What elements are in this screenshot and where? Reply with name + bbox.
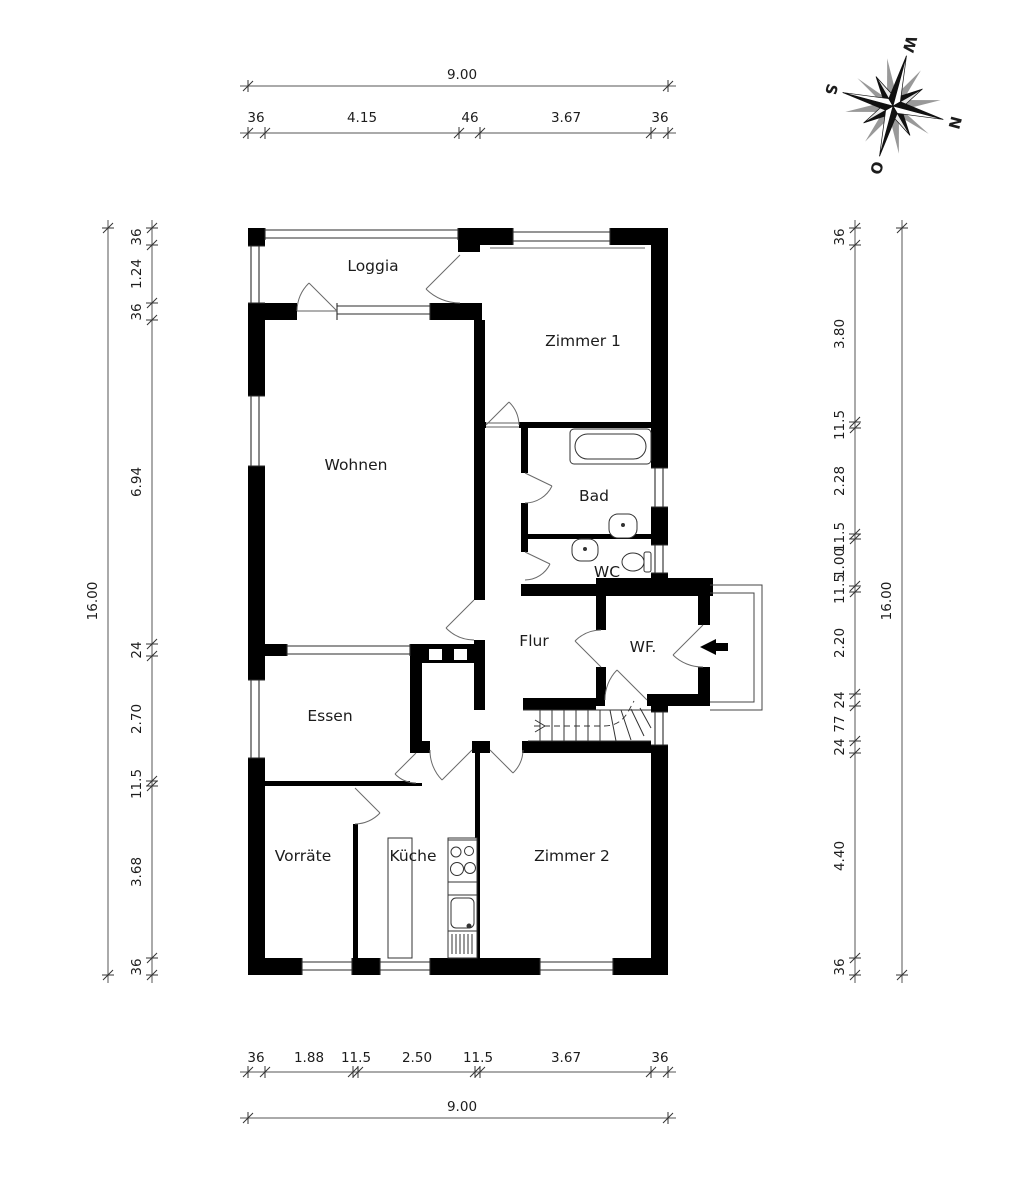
stair-east-window — [651, 712, 668, 745]
dim-top-seg: 46 — [461, 110, 478, 126]
winder-treads — [610, 708, 651, 741]
door-wc — [525, 552, 550, 580]
dimension-labels: 9.00 36 4.15 46 3.67 36 36 1.88 11.5 2.5… — [85, 67, 895, 1115]
room-labels: Loggia Zimmer 1 Wohnen Bad WC Flur WF. E… — [275, 257, 657, 865]
compass-star: N O S W — [804, 17, 982, 193]
dim-top-seg: 3.67 — [551, 110, 581, 126]
zimmer1-north-window — [513, 228, 610, 245]
bad-basin-drain — [622, 524, 625, 527]
door-flur-wf — [575, 630, 601, 667]
kueche-south-window — [380, 958, 430, 975]
vorraete-south-window — [302, 958, 352, 975]
wohnen-essen-partition — [287, 644, 410, 656]
dim-left-seg: 2.70 — [129, 704, 145, 734]
bathtub-inner — [575, 434, 646, 459]
room-label-zimmer2: Zimmer 2 — [534, 847, 610, 865]
compass-label-o: O — [866, 159, 887, 176]
dim-left-seg: 6.94 — [129, 467, 145, 497]
room-label-bad: Bad — [579, 487, 609, 505]
room-label-wohnen: Wohnen — [325, 456, 388, 474]
door-entry — [673, 625, 703, 667]
compass-label-n: N — [945, 114, 966, 131]
room-label-loggia: Loggia — [347, 257, 398, 275]
loggia-south-window — [337, 303, 430, 320]
stove — [448, 840, 477, 882]
dim-right-seg: 24 — [832, 691, 848, 708]
dim-left-seg: 36 — [129, 303, 145, 320]
toilet-bowl — [622, 553, 644, 571]
dim-top-total: 9.00 — [447, 67, 477, 83]
door-loggia-west — [297, 283, 337, 311]
dim-right-seg: 11.5 — [832, 410, 848, 440]
dim-bottom-seg: 2.50 — [402, 1050, 432, 1066]
dim-left-seg: 11.5 — [129, 769, 145, 799]
door-zimmer1 — [486, 402, 519, 425]
dim-right-seg: 2.20 — [832, 628, 848, 658]
door-thresholds — [297, 311, 519, 427]
door-wf-stairs — [605, 670, 647, 700]
dim-left-seg: 24 — [129, 641, 145, 658]
burner — [451, 847, 461, 857]
floor-plan-page: N O S W 9.00 36 4.15 46 3.67 36 36 1.88 … — [0, 0, 1015, 1200]
room-label-wc: WC — [594, 563, 620, 581]
door-loggia-east — [426, 255, 460, 303]
faucet — [467, 924, 471, 928]
burner — [465, 847, 474, 856]
door-zimmer2 — [490, 750, 523, 773]
wc-basin-drain — [584, 548, 587, 551]
loggia-west-window — [248, 246, 265, 303]
door-wohnen — [446, 600, 474, 640]
wc-east-window — [651, 545, 668, 573]
room-label-kueche: Küche — [389, 847, 436, 865]
room-label-essen: Essen — [307, 707, 352, 725]
dim-left-seg: 36 — [129, 228, 145, 245]
dim-right-seg: 77 — [832, 715, 848, 732]
essen-west-window — [248, 680, 265, 758]
door-kueche — [430, 750, 472, 780]
bad-east-window — [651, 468, 668, 507]
dim-right-seg: 11.5 — [832, 522, 848, 552]
floor-plan-drawing: N O S W 9.00 36 4.15 46 3.67 36 36 1.88 … — [0, 0, 1015, 1200]
dim-right-seg: 1.00 — [832, 548, 848, 578]
dim-left-total: 16.00 — [85, 582, 101, 621]
door-bad — [525, 473, 552, 503]
wohnen-west-window — [248, 396, 265, 466]
kitchen-sink — [451, 898, 474, 928]
door-essen — [395, 753, 416, 783]
chimney — [410, 644, 484, 663]
dim-left-seg: 3.68 — [129, 857, 145, 887]
dim-top-seg: 36 — [651, 110, 668, 126]
dim-right-seg: 24 — [832, 738, 848, 755]
compass-label-w: W — [899, 34, 921, 55]
compass-label-s: S — [821, 82, 841, 97]
toilet-cistern — [644, 552, 651, 572]
dim-bottom-seg: 36 — [651, 1050, 668, 1066]
dim-left-seg: 1.24 — [129, 259, 145, 289]
room-label-wf: WF. — [630, 638, 657, 656]
dim-right-seg: 4.40 — [832, 841, 848, 871]
compass-rose: N O S W — [804, 17, 982, 193]
dim-right-seg: 2.28 — [832, 466, 848, 496]
dim-top-seg: 4.15 — [347, 110, 377, 126]
dim-right-seg: 3.80 — [832, 319, 848, 349]
loggia-balustrade — [265, 228, 458, 240]
zimmer2-south-window — [540, 958, 613, 975]
dim-right-seg: 11.5 — [832, 574, 848, 604]
burner — [465, 863, 476, 874]
dim-top-seg: 36 — [247, 110, 264, 126]
burner — [451, 863, 464, 876]
dim-bottom-seg: 3.67 — [551, 1050, 581, 1066]
dim-left-seg: 36 — [129, 958, 145, 975]
room-label-zimmer1: Zimmer 1 — [545, 332, 621, 350]
dim-bottom-seg: 11.5 — [341, 1050, 371, 1066]
dim-right-seg: 36 — [832, 958, 848, 975]
dim-right-seg: 36 — [832, 228, 848, 245]
dim-bottom-total: 9.00 — [447, 1099, 477, 1115]
door-vorraete — [355, 788, 380, 824]
room-label-vorraete: Vorräte — [275, 847, 331, 865]
room-label-flur: Flur — [519, 632, 549, 650]
entry-arrow-icon — [700, 639, 728, 655]
dim-right-total: 16.00 — [879, 582, 895, 621]
dim-bottom-seg: 1.88 — [294, 1050, 324, 1066]
doors — [297, 255, 703, 824]
dim-bottom-seg: 36 — [247, 1050, 264, 1066]
dim-bottom-seg: 11.5 — [463, 1050, 493, 1066]
